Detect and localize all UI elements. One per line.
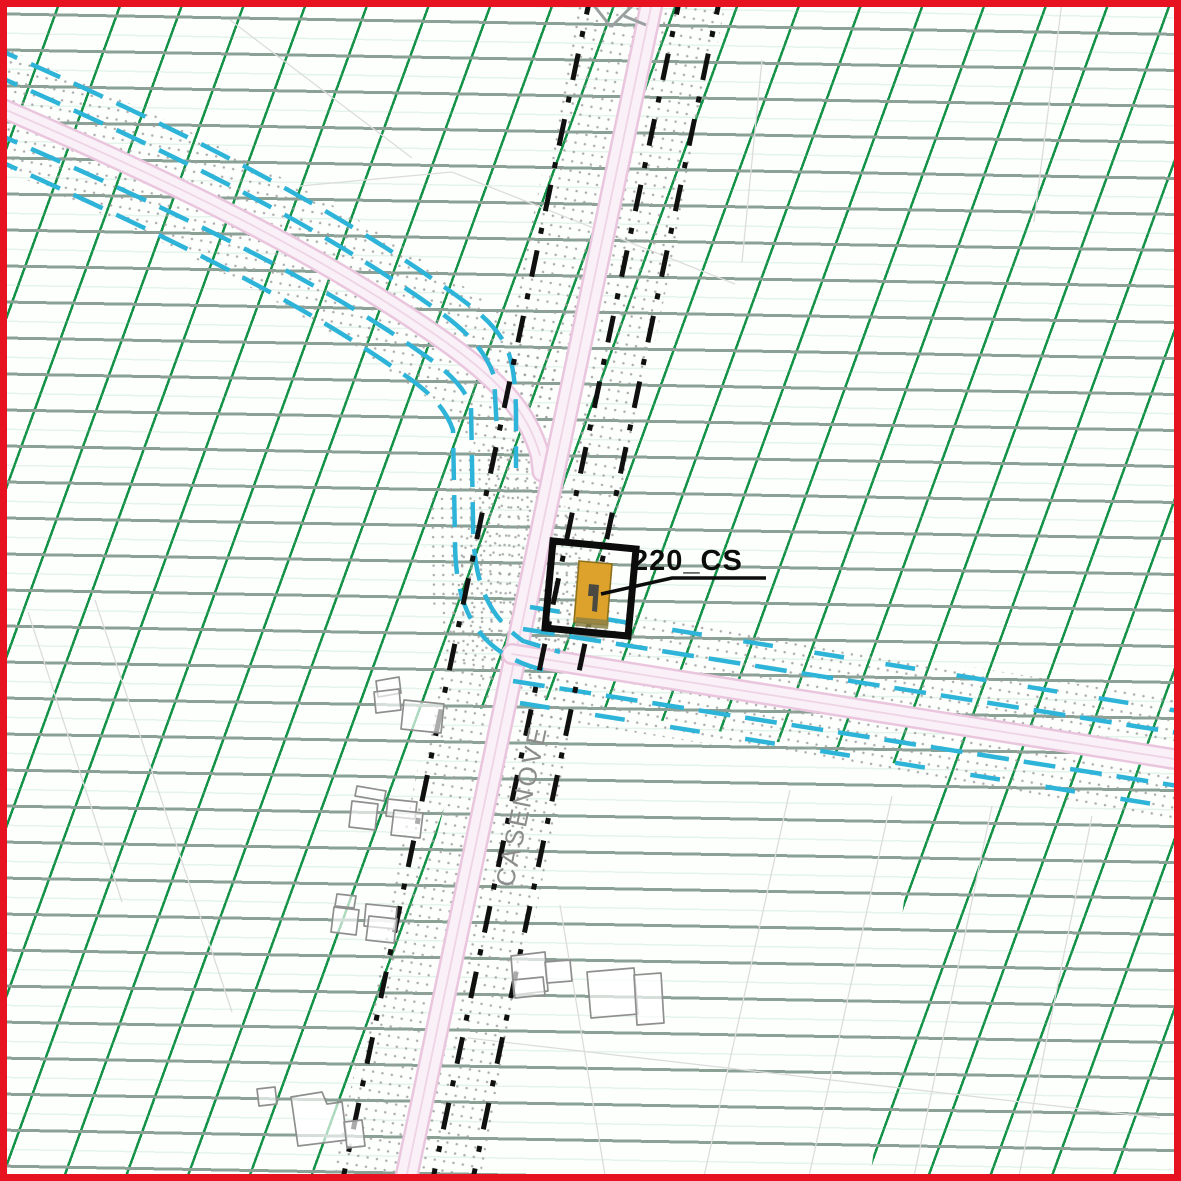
building-footprint [257, 1087, 277, 1106]
building-footprint [401, 700, 444, 733]
building-footprint [545, 960, 572, 983]
building-footprint [587, 968, 638, 1018]
leader-line [601, 578, 766, 594]
substation-label: 220_CS [632, 545, 743, 577]
building-footprint [331, 907, 359, 935]
map-canvas[interactable]: 220_CS CASENOVE [0, 0, 1181, 1181]
map-features-layer: 220_CS CASENOVE [0, 0, 1181, 1181]
building-footprint [355, 786, 386, 801]
building-footprint [349, 801, 378, 830]
building-footprint [391, 810, 423, 838]
building-footprint [513, 977, 545, 998]
building-footprint [634, 973, 664, 1025]
building-footprint [291, 1092, 347, 1146]
building-footprint [335, 894, 356, 908]
building-footprint [366, 916, 397, 943]
building-footprint [344, 1120, 365, 1148]
building-footprint [374, 689, 401, 713]
